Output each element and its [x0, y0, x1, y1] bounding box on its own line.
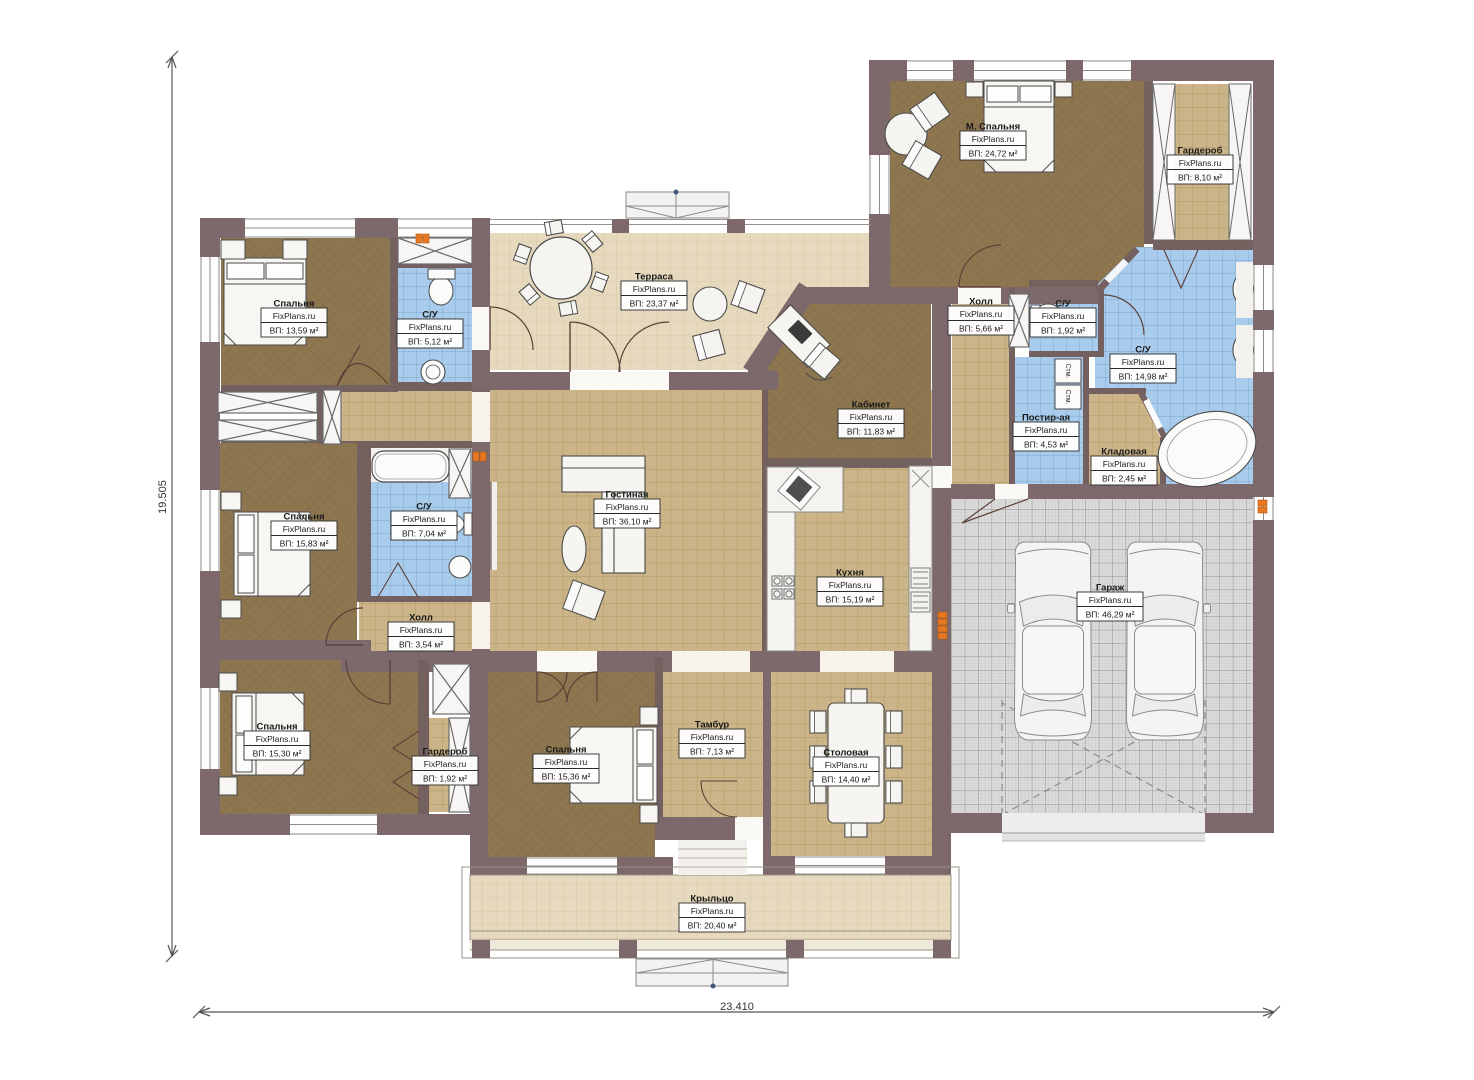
- svg-text:ВП: 15,36 м²: ВП: 15,36 м²: [542, 772, 591, 782]
- svg-text:ВП: 5,12 м²: ВП: 5,12 м²: [408, 337, 452, 347]
- svg-text:FixPlans.ru: FixPlans.ru: [1042, 311, 1085, 321]
- svg-text:ВП: 7,13 м²: ВП: 7,13 м²: [690, 747, 734, 757]
- svg-text:ВП: 3,54 м²: ВП: 3,54 м²: [399, 640, 443, 650]
- svg-text:ВП: 14,98 м²: ВП: 14,98 м²: [1119, 372, 1168, 382]
- svg-text:FixPlans.ru: FixPlans.ru: [1179, 158, 1222, 168]
- svg-text:FixPlans.ru: FixPlans.ru: [960, 309, 1003, 319]
- svg-text:FixPlans.ru: FixPlans.ru: [424, 759, 467, 769]
- svg-text:FixPlans.ru: FixPlans.ru: [273, 311, 316, 321]
- svg-text:ВП: 11,83 м²: ВП: 11,83 м²: [847, 427, 895, 437]
- svg-text:ВП: 13,59 м²: ВП: 13,59 м²: [270, 326, 319, 336]
- svg-text:FixPlans.ru: FixPlans.ru: [409, 322, 452, 332]
- svg-text:FixPlans.ru: FixPlans.ru: [691, 906, 734, 916]
- svg-text:ВП: 7,04 м²: ВП: 7,04 м²: [402, 529, 446, 539]
- svg-text:ВП: 15,30 м²: ВП: 15,30 м²: [253, 749, 302, 759]
- svg-text:FixPlans.ru: FixPlans.ru: [283, 524, 326, 534]
- svg-text:ВП: 5,66 м²: ВП: 5,66 м²: [959, 324, 1003, 334]
- svg-text:ВП: 15,83 м²: ВП: 15,83 м²: [280, 539, 329, 549]
- svg-text:FixPlans.ru: FixPlans.ru: [1103, 459, 1146, 469]
- svg-text:Стм.: Стм.: [1064, 389, 1071, 404]
- svg-text:23.410: 23.410: [720, 1001, 754, 1013]
- svg-text:ВП: 36,10 м²: ВП: 36,10 м²: [603, 517, 652, 527]
- svg-text:FixPlans.ru: FixPlans.ru: [1025, 425, 1068, 435]
- svg-text:FixPlans.ru: FixPlans.ru: [1089, 595, 1132, 605]
- svg-text:19.505: 19.505: [157, 480, 169, 514]
- svg-text:ВП: 1,92 м²: ВП: 1,92 м²: [423, 774, 467, 784]
- svg-text:ВП: 8,10 м²: ВП: 8,10 м²: [1178, 173, 1222, 183]
- svg-text:ВП: 4,53 м²: ВП: 4,53 м²: [1024, 440, 1068, 450]
- svg-text:ВП: 23,37 м²: ВП: 23,37 м²: [630, 299, 679, 309]
- svg-text:ВП: 20,40 м²: ВП: 20,40 м²: [688, 921, 737, 931]
- svg-text:FixPlans.ru: FixPlans.ru: [829, 580, 872, 590]
- svg-text:ВП: 15,19 м²: ВП: 15,19 м²: [826, 595, 875, 605]
- svg-text:FixPlans.ru: FixPlans.ru: [972, 134, 1015, 144]
- svg-text:FixPlans.ru: FixPlans.ru: [256, 734, 299, 744]
- svg-text:FixPlans.ru: FixPlans.ru: [633, 284, 676, 294]
- svg-text:FixPlans.ru: FixPlans.ru: [545, 757, 588, 767]
- svg-text:ВП: 24,72 м²: ВП: 24,72 м²: [969, 149, 1018, 159]
- svg-text:Стм.: Стм.: [1064, 363, 1071, 378]
- svg-text:FixPlans.ru: FixPlans.ru: [403, 514, 446, 524]
- svg-text:ВП: 46,29 м²: ВП: 46,29 м²: [1086, 610, 1135, 620]
- svg-text:FixPlans.ru: FixPlans.ru: [825, 760, 868, 770]
- svg-text:FixPlans.ru: FixPlans.ru: [1122, 357, 1165, 367]
- svg-text:ВП: 14,40 м²: ВП: 14,40 м²: [822, 775, 871, 785]
- svg-text:FixPlans.ru: FixPlans.ru: [606, 502, 649, 512]
- svg-text:ВП: 2,45 м²: ВП: 2,45 м²: [1102, 474, 1146, 484]
- svg-text:FixPlans.ru: FixPlans.ru: [400, 625, 443, 635]
- svg-text:ВП: 1,92 м²: ВП: 1,92 м²: [1041, 326, 1085, 336]
- svg-text:FixPlans.ru: FixPlans.ru: [691, 732, 734, 742]
- svg-text:FixPlans.ru: FixPlans.ru: [850, 412, 893, 422]
